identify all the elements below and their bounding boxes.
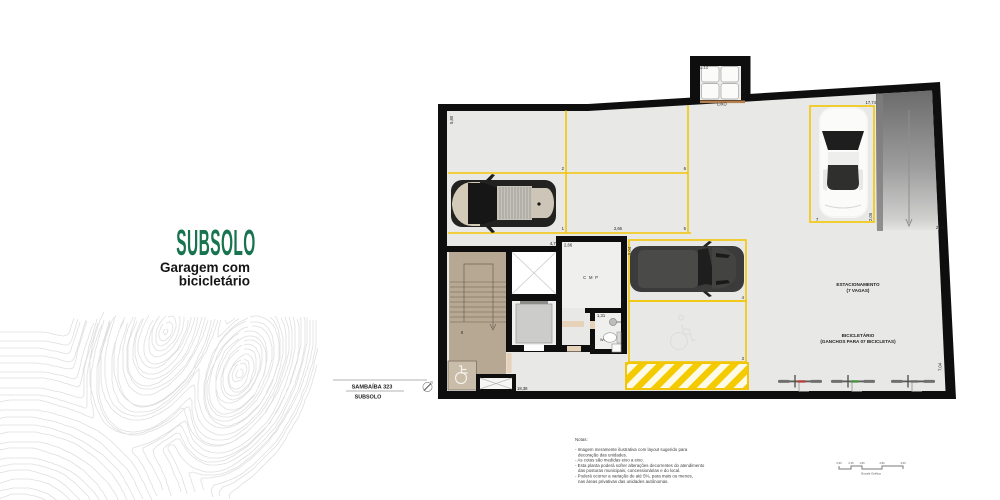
svg-text:ESTACIONAMENTO: ESTACIONAMENTO — [836, 282, 880, 287]
svg-text:nas áreas privativas das unida: nas áreas privativas das unidades autôno… — [578, 479, 669, 484]
svg-text:2,80: 2,80 — [879, 461, 885, 465]
svg-text:3,60: 3,60 — [900, 461, 906, 465]
svg-text:SAMBAÍBA 323: SAMBAÍBA 323 — [352, 383, 393, 391]
svg-text:(GANCHOS PARA 07 BICICLETAS): (GANCHOS PARA 07 BICICLETAS) — [820, 339, 896, 344]
svg-text:C M P: C M P — [583, 275, 599, 280]
svg-text:N: N — [431, 381, 434, 385]
svg-text:2,05: 2,05 — [868, 212, 873, 221]
svg-text:5,04: 5,04 — [627, 246, 632, 255]
svg-text:0,45: 0,45 — [848, 461, 854, 465]
svg-text:7,04: 7,04 — [938, 362, 943, 371]
svg-text:- Imagem meramente ilustrativa: - Imagem meramente ilustrativa com layou… — [575, 447, 688, 452]
svg-text:SUBSOLO: SUBSOLO — [176, 223, 256, 263]
svg-text:2,66: 2,66 — [564, 243, 573, 248]
svg-text:18,38: 18,38 — [517, 386, 528, 391]
svg-text:LIXO: LIXO — [717, 102, 727, 107]
svg-text:2,73: 2,73 — [936, 225, 945, 230]
svg-text:4,77: 4,77 — [550, 241, 559, 246]
svg-text:17,74: 17,74 — [866, 100, 877, 105]
svg-text:BICICLETÁRIO: BICICLETÁRIO — [842, 332, 875, 338]
svg-text:5,80: 5,80 — [449, 115, 454, 124]
svg-text:- Poderá ocorrer a variação de: - Poderá ocorrer a variação de até 5%, p… — [575, 474, 693, 479]
svg-text:das posturas municipais, conce: das posturas municipais, concessionárias… — [578, 468, 680, 473]
svg-text:2,04: 2,04 — [590, 343, 595, 352]
svg-text:1,31: 1,31 — [597, 313, 606, 318]
svg-text:0,90: 0,90 — [836, 461, 842, 465]
svg-text:1,80: 1,80 — [859, 461, 865, 465]
svg-text:(7 VAGAS): (7 VAGAS) — [847, 288, 870, 293]
svg-text:3,04: 3,04 — [620, 298, 625, 307]
svg-text:Notas:: Notas: — [575, 437, 588, 442]
svg-text:- Esta planta poderá sofrer al: - Esta planta poderá sofrer alterações d… — [575, 463, 705, 468]
svg-text:Escala Gráfica: Escala Gráfica — [861, 472, 881, 476]
svg-text:SUBSOLO: SUBSOLO — [355, 395, 382, 401]
svg-text:bicicletário: bicicletário — [179, 274, 250, 289]
svg-text:decoração das unidades.: decoração das unidades. — [578, 452, 627, 457]
svg-text:1,62: 1,62 — [741, 89, 746, 98]
svg-text:2,12: 2,12 — [700, 65, 709, 70]
svg-text:- As cotas são medidas eixo a: - As cotas são medidas eixo a eixo. — [575, 458, 644, 463]
svg-text:2,66: 2,66 — [614, 226, 623, 231]
